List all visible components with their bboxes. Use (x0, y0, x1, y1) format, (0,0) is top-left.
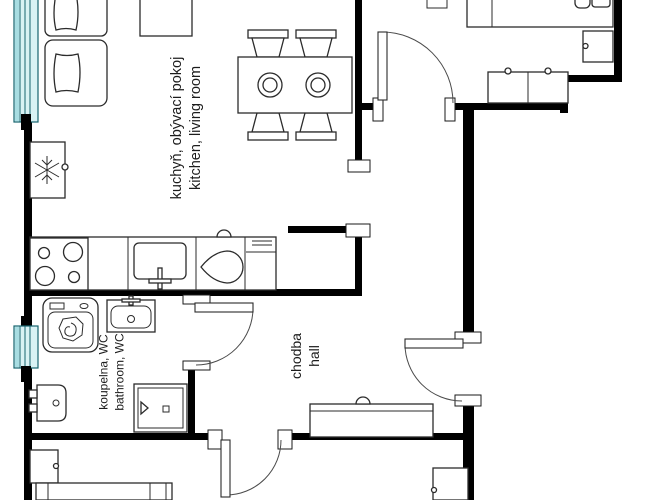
faucet (122, 299, 140, 302)
pillow (575, 0, 590, 8)
wall-bottom-west (24, 433, 208, 440)
stove (30, 238, 88, 290)
room-label-czech: koupelna, WC (96, 333, 112, 410)
door-bottom-room (208, 430, 292, 497)
wall-kitchen-stub (288, 226, 350, 233)
room-label-english: hall (305, 333, 323, 379)
pillow (592, 0, 610, 7)
sofa (45, 0, 107, 106)
hall-sideboard (310, 397, 433, 437)
door-jamb (183, 361, 210, 370)
nightstand-handle (54, 464, 59, 469)
window-sill-cap (21, 366, 31, 382)
door-swing-arc (226, 440, 281, 495)
door-swing-arc (382, 32, 453, 103)
door-hall-east (405, 332, 481, 406)
door-jamb (346, 224, 370, 237)
nightstand-top-right (583, 31, 613, 62)
cabinet-bottom-middle (432, 468, 469, 500)
wall-livingroom-right-lower (355, 236, 362, 296)
door-swing-arc (405, 344, 462, 401)
toilet (29, 385, 66, 421)
shower (134, 384, 187, 432)
sideboard-handle (356, 397, 370, 404)
floor-plan-drawing (0, 0, 646, 500)
window-bathroom (14, 316, 38, 382)
cropped-furniture-edge (427, 0, 447, 8)
door-jamb (278, 430, 292, 449)
wardrobe-handle (545, 68, 551, 74)
faucet (149, 279, 171, 283)
dining-table (238, 57, 352, 113)
fridge (30, 142, 68, 198)
bed-bottom-left (36, 483, 172, 500)
door-bathroom (183, 295, 253, 370)
room-label-czech: chodba (287, 333, 305, 379)
wall-right-outer (614, 0, 622, 82)
dining-chair (248, 113, 288, 140)
door-swing-arc (196, 308, 253, 365)
nightstand-handle (583, 44, 588, 49)
floor-plan: kuchyň, obývací pokoj kitchen, living ro… (0, 0, 646, 500)
sofa-cushion (54, 0, 78, 30)
bathroom-sink (107, 296, 155, 332)
dining-chair (296, 30, 336, 57)
cabinet-handle (432, 488, 437, 493)
nightstand-bottom-left (30, 450, 59, 483)
kitchen-counter (30, 230, 276, 290)
room-label-bathroom: koupelna, WC bathroom, WC (96, 333, 127, 410)
door-jamb (208, 430, 222, 449)
wall-bathroom-right-bottom (188, 368, 195, 433)
wardrobe-handle (505, 68, 511, 74)
side-table (140, 0, 192, 36)
door-jamb (445, 98, 455, 121)
door-jamb (373, 98, 383, 121)
wardrobe (488, 68, 568, 103)
door-panel (405, 339, 463, 348)
room-label-czech: kuchyň, obývací pokoj (168, 57, 187, 200)
room-label-english: kitchen, living room (187, 57, 206, 200)
wall-bedroom-south-stub (362, 103, 374, 110)
dining-chair (248, 30, 288, 57)
door-jamb (348, 160, 370, 172)
window-sill-cap (21, 114, 31, 130)
sofa-cushion (54, 54, 80, 92)
counter-handle (217, 230, 231, 237)
wall-hall-right-upper (463, 110, 474, 335)
bed-top-right (467, 0, 613, 27)
dining-set (238, 30, 352, 140)
window-living-room (14, 0, 38, 130)
door-panel (378, 32, 387, 100)
opening-kitchen-passage (346, 160, 370, 237)
room-label-english: bathroom, WC (112, 333, 128, 410)
fridge-handle (62, 164, 68, 170)
room-label-hall: chodba hall (287, 333, 323, 379)
washing-machine (43, 298, 98, 352)
room-label-kitchen-living: kuchyň, obývací pokoj kitchen, living ro… (168, 57, 206, 200)
door-bedroom (373, 32, 455, 121)
dining-chair (296, 113, 336, 140)
door-panel (195, 303, 253, 312)
door-panel (221, 440, 230, 497)
wall-outer-step-horizontal (560, 75, 622, 82)
wall-bedroom-south (455, 103, 568, 110)
wall-livingroom-right-upper (355, 0, 362, 162)
